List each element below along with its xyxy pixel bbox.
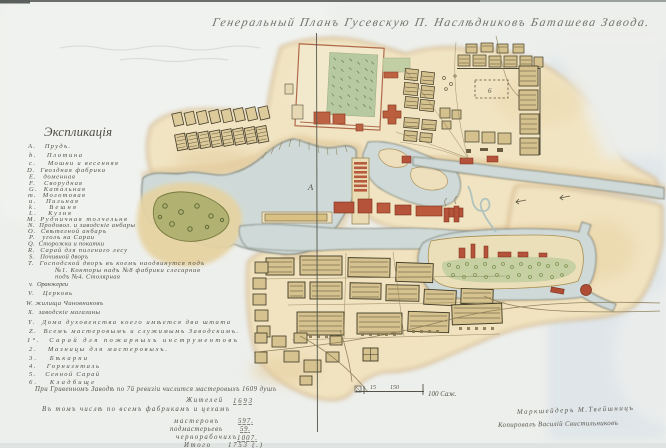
svg-text:100 Саж.: 100 Саж. [428, 390, 457, 398]
svg-text:150: 150 [390, 385, 399, 391]
svg-text:При Гривенномъ Заводѣ по 7й ре: При Гривенномъ Заводѣ по 7й ревизіи числ… [34, 386, 276, 393]
svg-text:A. Прудъ.: A. Прудъ. [27, 143, 70, 150]
svg-text:Экспликація: Экспликація [44, 124, 112, 139]
svg-text:2. Мазницы для мастеровыхъ.: 2. Мазницы для мастеровыхъ. [29, 346, 167, 353]
svg-text:b. Плотина: b. Плотина [29, 152, 83, 159]
svg-text:W. жилища Чиновниковъ: W. жилища Чиновниковъ [26, 300, 104, 307]
svg-text:597.: 597. [238, 418, 253, 425]
svg-text:чернорабочихъ: чернорабочихъ [176, 434, 236, 441]
svg-text:T. Господской дворъ въ коемъ: T. Господской дворъ въ коемъ наодвинутся… [28, 260, 205, 267]
svg-text:подъ №4. Столярная: подъ №4. Столярная [55, 274, 120, 281]
svg-text:1ª. Сарай для пожарныхъ инстр: 1ª. Сарай для пожарныхъ инструментовъ [27, 337, 238, 344]
svg-text:4. Горнизнталь: 4. Горнизнталь [29, 363, 99, 370]
svg-text:Y. Дома духовенства коего имѣ: Y. Дома духовенства коего имѣется два шт… [28, 319, 231, 326]
svg-text:мастеровъ: мастеровъ [173, 418, 218, 425]
svg-text:6. Кладбище: 6. Кладбище [29, 379, 94, 386]
svg-text:v. Оранжереи: v. Оранжереи [29, 281, 69, 288]
svg-text:5. Сенной Сарай: 5. Сенной Сарай [29, 371, 100, 378]
svg-text:Въ томъ числѣ по всемъ фабрика: Въ томъ числѣ по всемъ фабрикамъ и цехам… [42, 406, 229, 413]
svg-text:А: А [307, 182, 314, 192]
svg-text:X. заводскіе магазины: X. заводскіе магазины [27, 309, 101, 316]
svg-text:Итого: Итого [183, 442, 211, 448]
svg-text:1753 (.): 1753 (.) [228, 442, 263, 448]
svg-text:59.: 59. [240, 426, 250, 433]
svg-text:подмастерьевъ: подмастерьевъ [170, 426, 222, 433]
svg-text:c. Мошни и весенняя: c. Мошни и весенняя [29, 160, 118, 167]
svg-text:6: 6 [488, 87, 492, 95]
svg-text:V. Церковь: V. Церковь [28, 290, 72, 297]
svg-text:1693: 1693 [233, 398, 253, 405]
svg-text:15: 15 [370, 385, 376, 391]
